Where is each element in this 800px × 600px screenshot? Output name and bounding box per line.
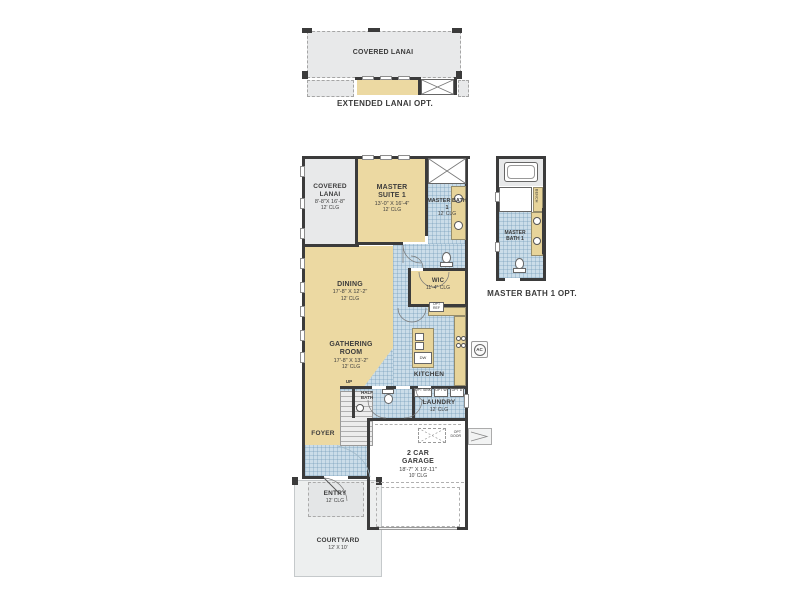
hall-tile <box>393 270 408 306</box>
ac-label: AC <box>474 344 486 356</box>
laundry-opt-sink-label: OPT SINK <box>414 389 432 393</box>
window <box>398 76 410 80</box>
window <box>398 155 410 160</box>
ext-right-sliver <box>458 80 469 97</box>
attic-access <box>418 428 446 443</box>
window <box>300 282 305 293</box>
wall <box>302 244 359 247</box>
opt-ref-label: OPT REF <box>429 303 444 311</box>
optbath-bench-label: BENCH <box>535 189 539 203</box>
door-gap <box>396 386 410 389</box>
label-gathering-room: GATHERING ROOM 17'-8" X 13'-2" 12' CLG <box>322 341 380 370</box>
label-laundry: LAUNDRY 12' CLG <box>413 399 465 413</box>
optbath-shower <box>499 187 532 212</box>
garage-dash-line <box>375 424 461 425</box>
laundry-opt-washer-label: OPT W <box>434 389 448 393</box>
wall <box>542 208 546 254</box>
ext-suite-sliver <box>357 80 419 95</box>
halfbath-toilet <box>384 394 393 404</box>
shower <box>428 158 466 184</box>
window <box>300 228 305 239</box>
label-entry: ENTRY 12' CLG <box>310 490 360 504</box>
label-master-bath: MASTER BATH 1 12' CLG <box>427 198 467 217</box>
label-covered-lanai: COVERED LANAI 8'-8"X 16'-8" 12' CLG <box>306 183 354 211</box>
dishwasher-label: DW <box>414 356 432 360</box>
window <box>380 155 392 160</box>
halfbath-sink <box>356 404 364 412</box>
window <box>300 330 305 341</box>
wall <box>496 156 546 159</box>
door-gap <box>505 278 520 281</box>
window <box>300 166 305 177</box>
foyer-tile <box>305 445 370 476</box>
label-half-bath: HALF BATH <box>355 390 379 401</box>
window <box>362 155 374 160</box>
ac-unit: AC <box>471 341 488 358</box>
window <box>300 198 305 209</box>
island-sink <box>415 342 424 350</box>
wall <box>302 476 324 479</box>
stairs-up-label: UP <box>342 380 356 385</box>
window <box>495 192 500 202</box>
wall <box>355 156 358 247</box>
island-sink <box>415 333 424 341</box>
ext-strip-stub <box>454 77 457 95</box>
optbath-sink <box>533 217 541 225</box>
hall-tile <box>393 244 465 270</box>
window <box>300 306 305 317</box>
door-gap <box>411 268 423 271</box>
bath-sink <box>454 221 463 230</box>
window <box>495 242 500 252</box>
courtyard-stub <box>292 477 298 485</box>
opt-door-label: OPT DOOR <box>443 431 461 439</box>
optbath-sink <box>533 237 541 245</box>
ext-lanai-label: COVERED LANAI <box>307 49 459 57</box>
optbath-tub <box>504 162 538 182</box>
label-wic: WIC 11'-4" CLG <box>415 278 461 291</box>
opt-door-swing <box>468 428 492 445</box>
optbath-caption: MASTER BATH 1 OPT. <box>473 289 591 298</box>
label-dining: DINING 17'-8" X 12'-2" 12' CLG <box>320 281 380 302</box>
ext-lanai-house-sliver <box>307 80 354 97</box>
label-master-suite: MASTER SUITE 1 13'-0" X 16'-4" 12' CLG <box>364 184 420 213</box>
ext-strip-stub <box>418 77 421 95</box>
tub-inner <box>507 165 535 179</box>
wall <box>496 278 546 281</box>
cooktop-burner <box>461 336 466 341</box>
garage-apron <box>376 487 460 527</box>
window <box>300 352 305 363</box>
cooktop-burner <box>461 343 466 348</box>
ext-lanai-post <box>452 28 462 33</box>
optbath-toilet-tank <box>513 268 526 273</box>
wall <box>496 156 499 281</box>
ext-shower-box <box>421 79 454 95</box>
floor-plan-canvas: COVERED LANAI EXTENDED LANAI OPT. <box>0 0 800 600</box>
toilet-tank <box>440 262 453 267</box>
label-optbath: MASTER BATH 1 <box>498 230 532 242</box>
garage-door <box>379 527 457 530</box>
wall <box>348 476 370 479</box>
ext-lanai-post <box>302 28 312 33</box>
wall <box>358 242 403 245</box>
label-garage: 2 CAR GARAGE 18'-7" X 19'-11" 10' CLG <box>378 450 458 479</box>
wall <box>408 268 411 307</box>
label-foyer: FOYER <box>307 430 339 438</box>
window <box>380 76 392 80</box>
ext-lanai-caption: EXTENDED LANAI OPT. <box>320 99 450 108</box>
ext-lanai-post <box>302 71 308 79</box>
window <box>300 258 305 269</box>
label-courtyard: COURTYARD 12' X 10' <box>298 537 378 551</box>
ext-lanai-post <box>368 28 380 32</box>
garage-dash-line <box>371 482 464 483</box>
label-kitchen: KITCHEN <box>402 371 456 379</box>
wall <box>367 418 468 421</box>
window <box>362 76 374 80</box>
laundry-opt-dryer-label: OPT D <box>450 389 464 393</box>
